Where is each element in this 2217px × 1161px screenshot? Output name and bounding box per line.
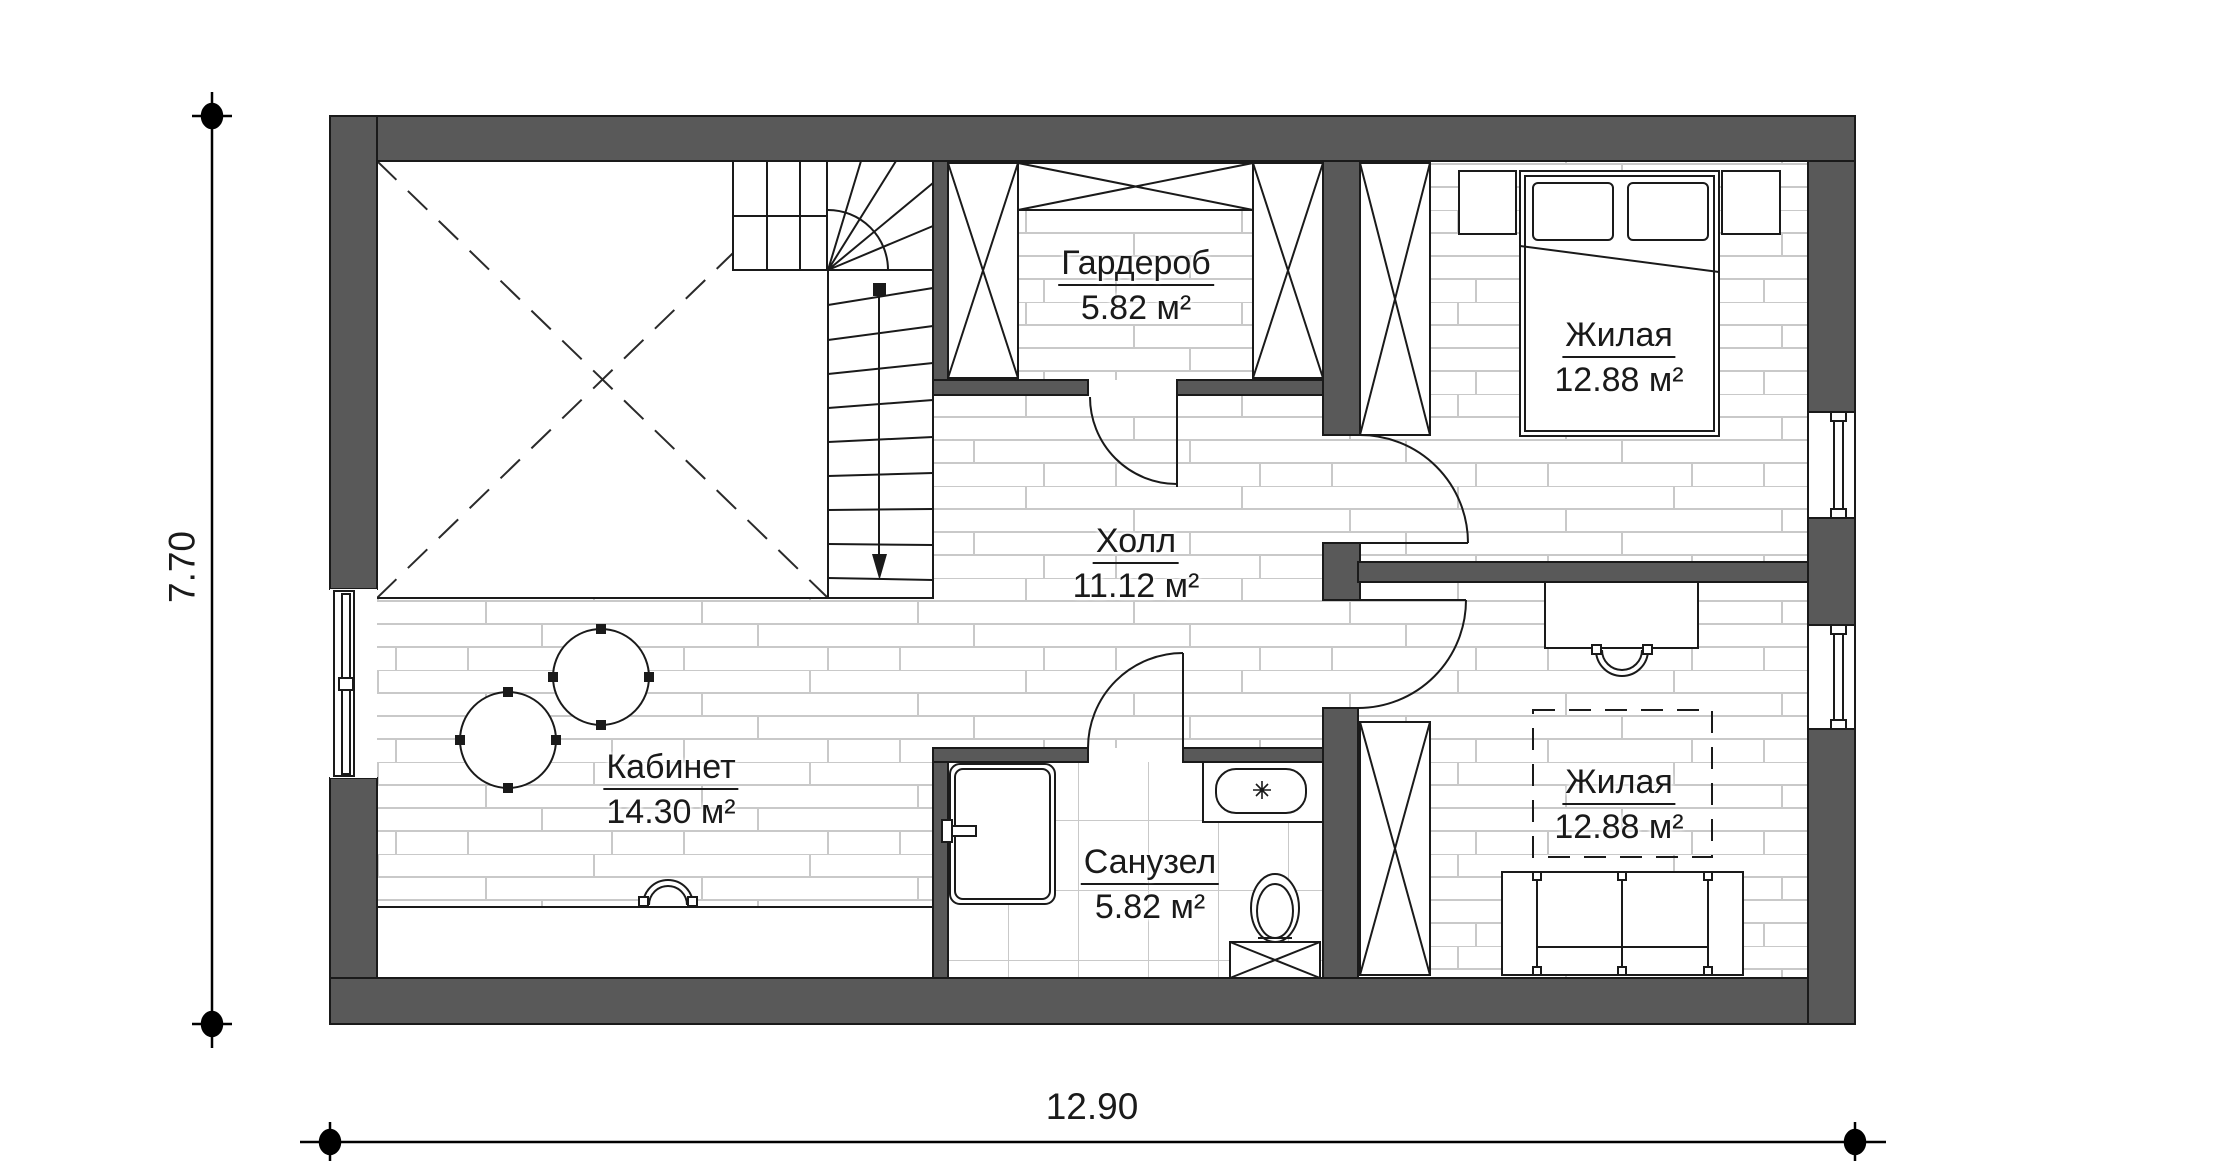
desk-icon <box>1545 582 1698 648</box>
floor-plan: Гардероб 5.82 м² Жилая 12.88 м² Холл 11.… <box>0 0 2217 1161</box>
wall-bathroom-top-left <box>933 748 1088 762</box>
window-right-top-cap-b <box>1831 509 1846 518</box>
dimension-marker-top-left <box>192 104 232 128</box>
staircase <box>733 161 933 598</box>
window-right-bottom <box>1808 625 1855 729</box>
pillow-icon-left <box>1533 183 1613 240</box>
stair-flight <box>828 270 933 598</box>
wall-left-upper <box>330 116 377 589</box>
window-right-bottom-glass <box>1834 634 1843 720</box>
room-name-bedroom-bottom: Жилая <box>1562 763 1676 805</box>
window-left-glass-upper <box>342 594 350 678</box>
wall-right-middle <box>1808 518 1855 625</box>
window-left-transom <box>339 678 353 690</box>
room-name-bedroom-top: Жилая <box>1562 316 1676 358</box>
cabinet-icon-wardrobe-left <box>948 163 1018 378</box>
wall-bedrooms-divider <box>1358 562 1808 582</box>
wall-stairs-wardrobe <box>933 161 948 395</box>
stair-winder-area <box>827 161 933 270</box>
wall-wardrobe-bedroom <box>1323 161 1360 435</box>
cabinet-icon-wardrobe-right <box>1253 163 1323 378</box>
sofa-icon <box>1502 872 1743 975</box>
room-name-bathroom: Санузел <box>1081 843 1219 885</box>
window-right-top-cap-a <box>1831 412 1846 421</box>
cabinet-icon-bedroom-top <box>1360 163 1430 435</box>
stair-walkline-start-marker <box>874 284 885 295</box>
room-label-bathroom: Санузел 5.82 м² <box>1081 843 1219 927</box>
room-area-bedroom-top: 12.88 м² <box>1554 361 1683 400</box>
wall-top <box>330 116 1855 161</box>
dimension-marker-bottom-left <box>192 1012 232 1036</box>
room-area-hall: 11.12 м² <box>1073 567 1200 606</box>
room-area-bedroom-bottom: 12.88 м² <box>1554 808 1683 847</box>
wall-bathroom-bedroom <box>1323 708 1358 978</box>
room-label-wardrobe: Гардероб 5.82 м² <box>1058 244 1214 328</box>
nightstand-icon-left <box>1459 171 1516 234</box>
room-name-office: Кабинет <box>603 748 738 790</box>
wall-bathroom-left <box>933 762 948 978</box>
window-right-top <box>1808 412 1855 518</box>
wall-bottom <box>330 978 1855 1024</box>
wall-right-upper <box>1808 161 1855 412</box>
wall-bathroom-top-right <box>1183 748 1323 762</box>
shower-icon <box>942 764 1055 904</box>
room-label-hall: Холл 11.12 м² <box>1073 522 1200 606</box>
room-name-hall: Холл <box>1093 522 1179 564</box>
toilet-cistern-icon <box>1230 942 1320 978</box>
window-right-top-opening <box>1808 412 1855 518</box>
shelf-icon-wardrobe <box>1018 163 1253 210</box>
window-right-bottom-opening <box>1808 625 1855 729</box>
room-area-office: 14.30 м² <box>603 793 738 832</box>
room-area-bathroom: 5.82 м² <box>1081 888 1219 927</box>
dimension-line-bottom <box>300 1122 1886 1161</box>
dimension-marker-bottom-end <box>1845 1122 1865 1161</box>
wall-wardrobe-bottom-left <box>933 380 1088 395</box>
cabinet-icon-bedroom-bottom <box>1360 722 1430 975</box>
pillow-icon-right <box>1628 183 1708 240</box>
wall-wardrobe-bottom-right <box>1177 380 1325 395</box>
window-right-bottom-cap-b <box>1831 720 1846 729</box>
nightstand-icon-right <box>1722 171 1780 234</box>
dimension-marker-bottom-start <box>320 1122 340 1161</box>
window-left-glass-lower <box>342 690 350 774</box>
window-right-bottom-cap-a <box>1831 625 1846 634</box>
shower-mixer-icon <box>942 820 952 842</box>
window-right-top-glass <box>1834 421 1843 509</box>
room-label-bedroom-bottom: Жилая 12.88 м² <box>1554 763 1683 847</box>
room-label-office: Кабинет 14.30 м² <box>603 748 738 832</box>
dimension-width-label: 12.90 <box>1046 1088 1139 1125</box>
wall-right-lower <box>1808 729 1855 1024</box>
room-name-wardrobe: Гардероб <box>1058 244 1214 286</box>
sink-icon <box>1203 762 1323 822</box>
window-left <box>330 589 377 778</box>
wall-hall-stub <box>1323 543 1360 600</box>
room-area-wardrobe: 5.82 м² <box>1058 289 1214 328</box>
dimension-height-label: 7.70 <box>164 531 201 603</box>
room-label-bedroom-top: Жилая 12.88 м² <box>1554 316 1683 400</box>
